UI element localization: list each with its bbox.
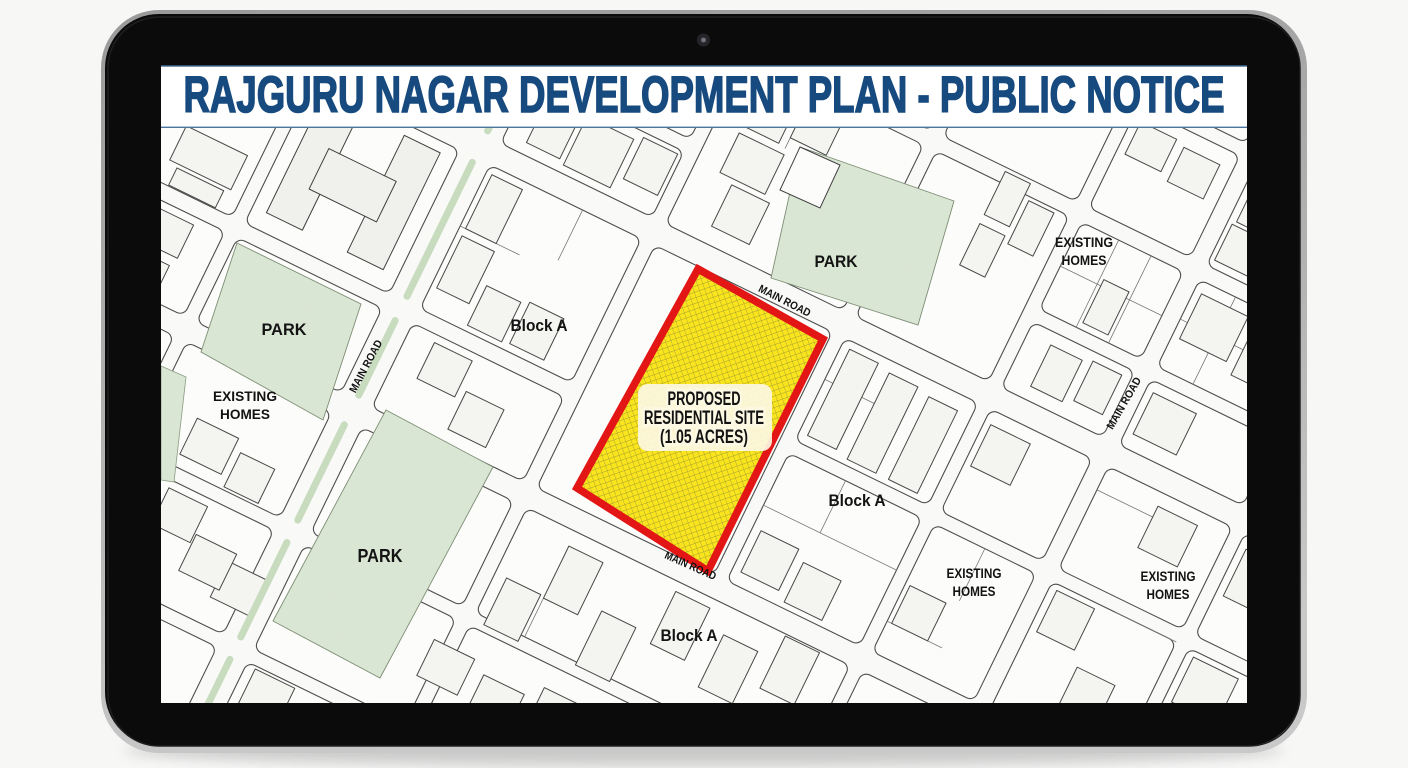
svg-text:RAJGURU NAGAR DEVELOPMENT PLAN: RAJGURU NAGAR DEVELOPMENT PLAN - PUBLIC …: [184, 66, 1225, 123]
